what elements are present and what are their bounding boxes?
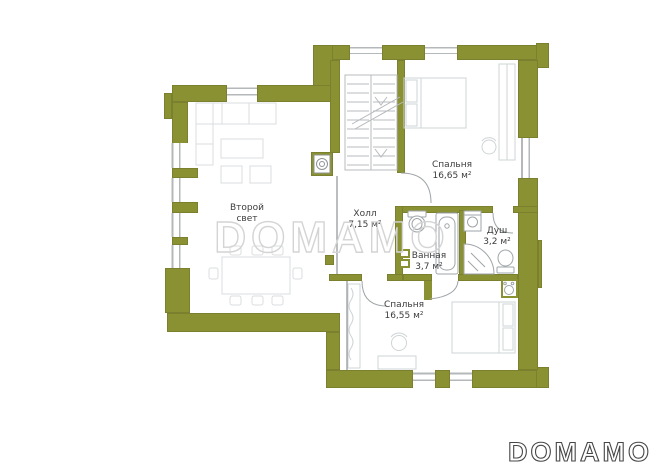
floor-plan-canvas: Второй свет Холл 7,15 м² Спальня 16,65 м… (0, 0, 665, 470)
center-watermark: DOMAMO (214, 213, 449, 262)
brand-logo: DOMAMO (508, 437, 652, 467)
branding-layer: DOMAMO DOMAMO (0, 0, 665, 470)
